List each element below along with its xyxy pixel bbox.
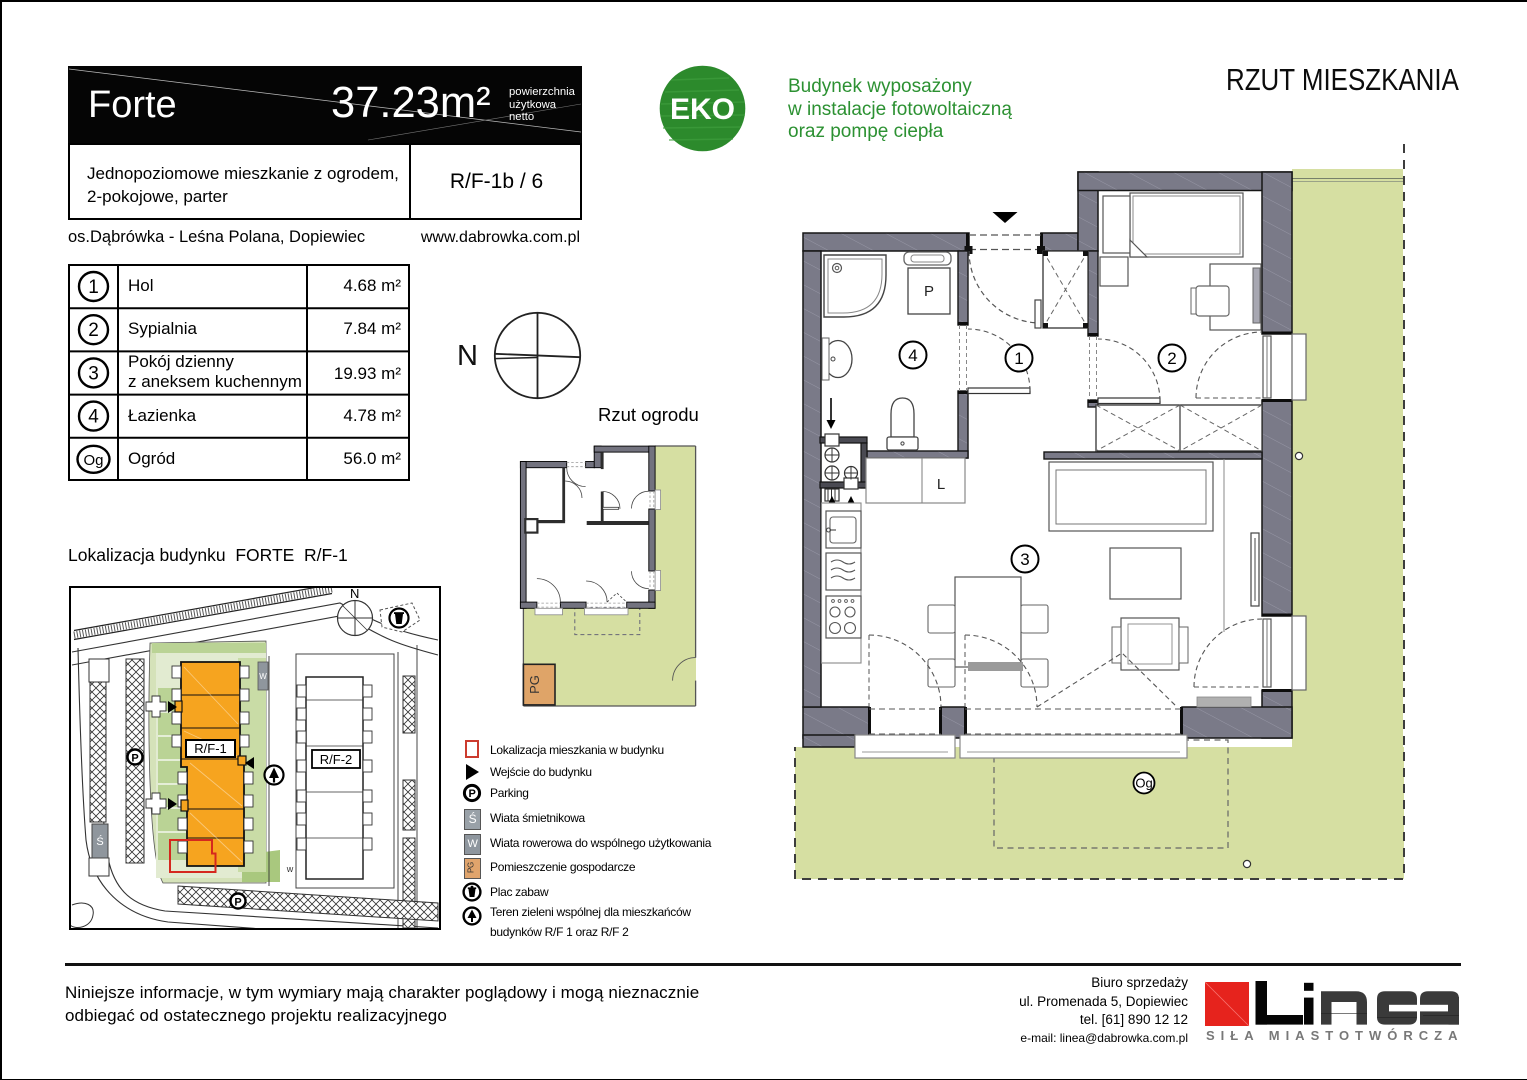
svg-text:Ś: Ś <box>96 835 103 848</box>
svg-text:R/F-1: R/F-1 <box>194 741 227 756</box>
svg-text:P: P <box>468 788 475 800</box>
svg-text:1: 1 <box>1014 349 1023 368</box>
svg-text:P: P <box>234 897 241 909</box>
svg-text:w: w <box>286 864 294 874</box>
svg-text:Og: Og <box>83 452 103 469</box>
svg-text:Og: Og <box>1135 776 1152 791</box>
svg-text:L: L <box>937 476 945 493</box>
svg-text:EKO: EKO <box>670 93 735 126</box>
svg-text:3: 3 <box>88 363 99 384</box>
svg-text:4: 4 <box>908 346 917 365</box>
svg-text:2: 2 <box>1167 349 1176 368</box>
svg-text:R/F-2: R/F-2 <box>320 752 353 767</box>
svg-text:PG: PG <box>527 675 542 694</box>
svg-text:PG: PG <box>467 862 476 873</box>
svg-text:N: N <box>457 340 478 372</box>
svg-text:W: W <box>259 672 267 681</box>
svg-text:P: P <box>924 283 934 300</box>
svg-text:3: 3 <box>1020 550 1029 569</box>
svg-text:N: N <box>350 586 359 601</box>
svg-text:2: 2 <box>88 320 99 341</box>
svg-text:P: P <box>131 753 138 765</box>
svg-text:1: 1 <box>88 277 99 298</box>
svg-text:4: 4 <box>88 407 99 428</box>
